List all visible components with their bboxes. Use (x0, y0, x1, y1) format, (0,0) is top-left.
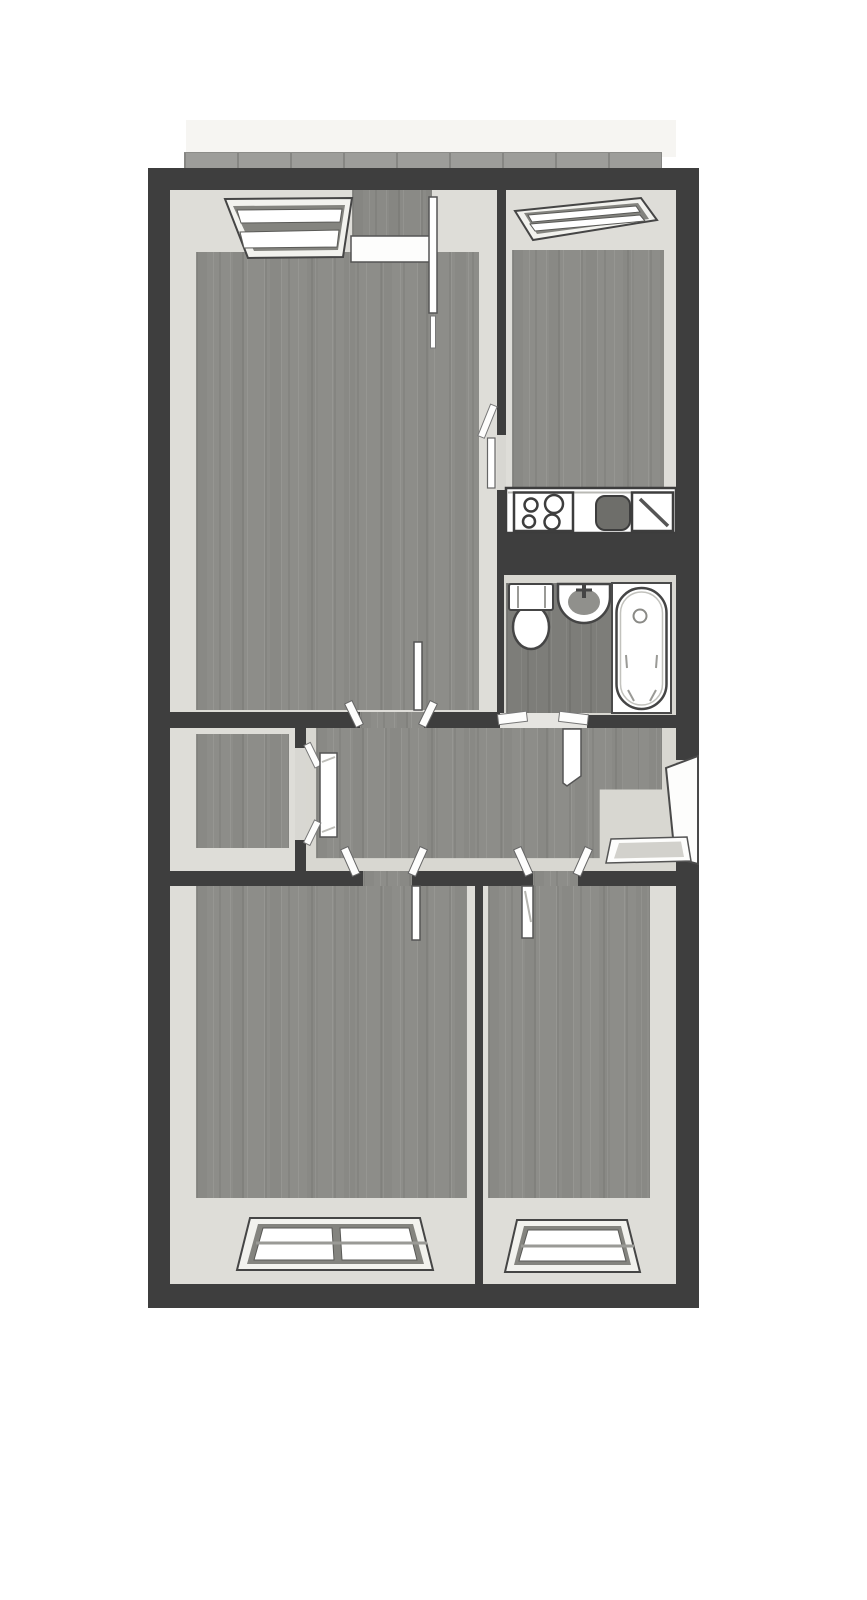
closet-door (304, 742, 337, 845)
balcony-door (351, 197, 437, 348)
fixtures-layer (0, 0, 867, 1600)
kitchen-sink (632, 493, 673, 532)
bedroom-right-door (514, 847, 593, 938)
cooktop (514, 493, 573, 532)
washbasin (558, 583, 610, 623)
bedroom-left-door (341, 847, 428, 940)
closet-door-leaf (320, 753, 337, 837)
bedroom-right-door-leaf (522, 886, 533, 938)
bathroom-door-leaf (563, 729, 581, 786)
bedroom-right-window (505, 1220, 640, 1272)
kitchen-counter (506, 488, 676, 533)
floor-plan-canvas (0, 0, 867, 1600)
bathtub (612, 583, 671, 713)
kitchen-door-leaf (478, 404, 497, 488)
living-window (225, 198, 352, 258)
kitchen-basin (596, 496, 630, 530)
doormat (606, 837, 691, 863)
living-door (345, 642, 438, 727)
bedroom-left-door-leaf (412, 886, 420, 940)
toilet (509, 584, 553, 649)
bathroom-door (497, 711, 588, 786)
living-door-leaf (414, 642, 422, 710)
bedroom-left-window (237, 1218, 433, 1270)
balcony-door-leaf (429, 197, 437, 313)
kitchen-window (515, 198, 657, 240)
